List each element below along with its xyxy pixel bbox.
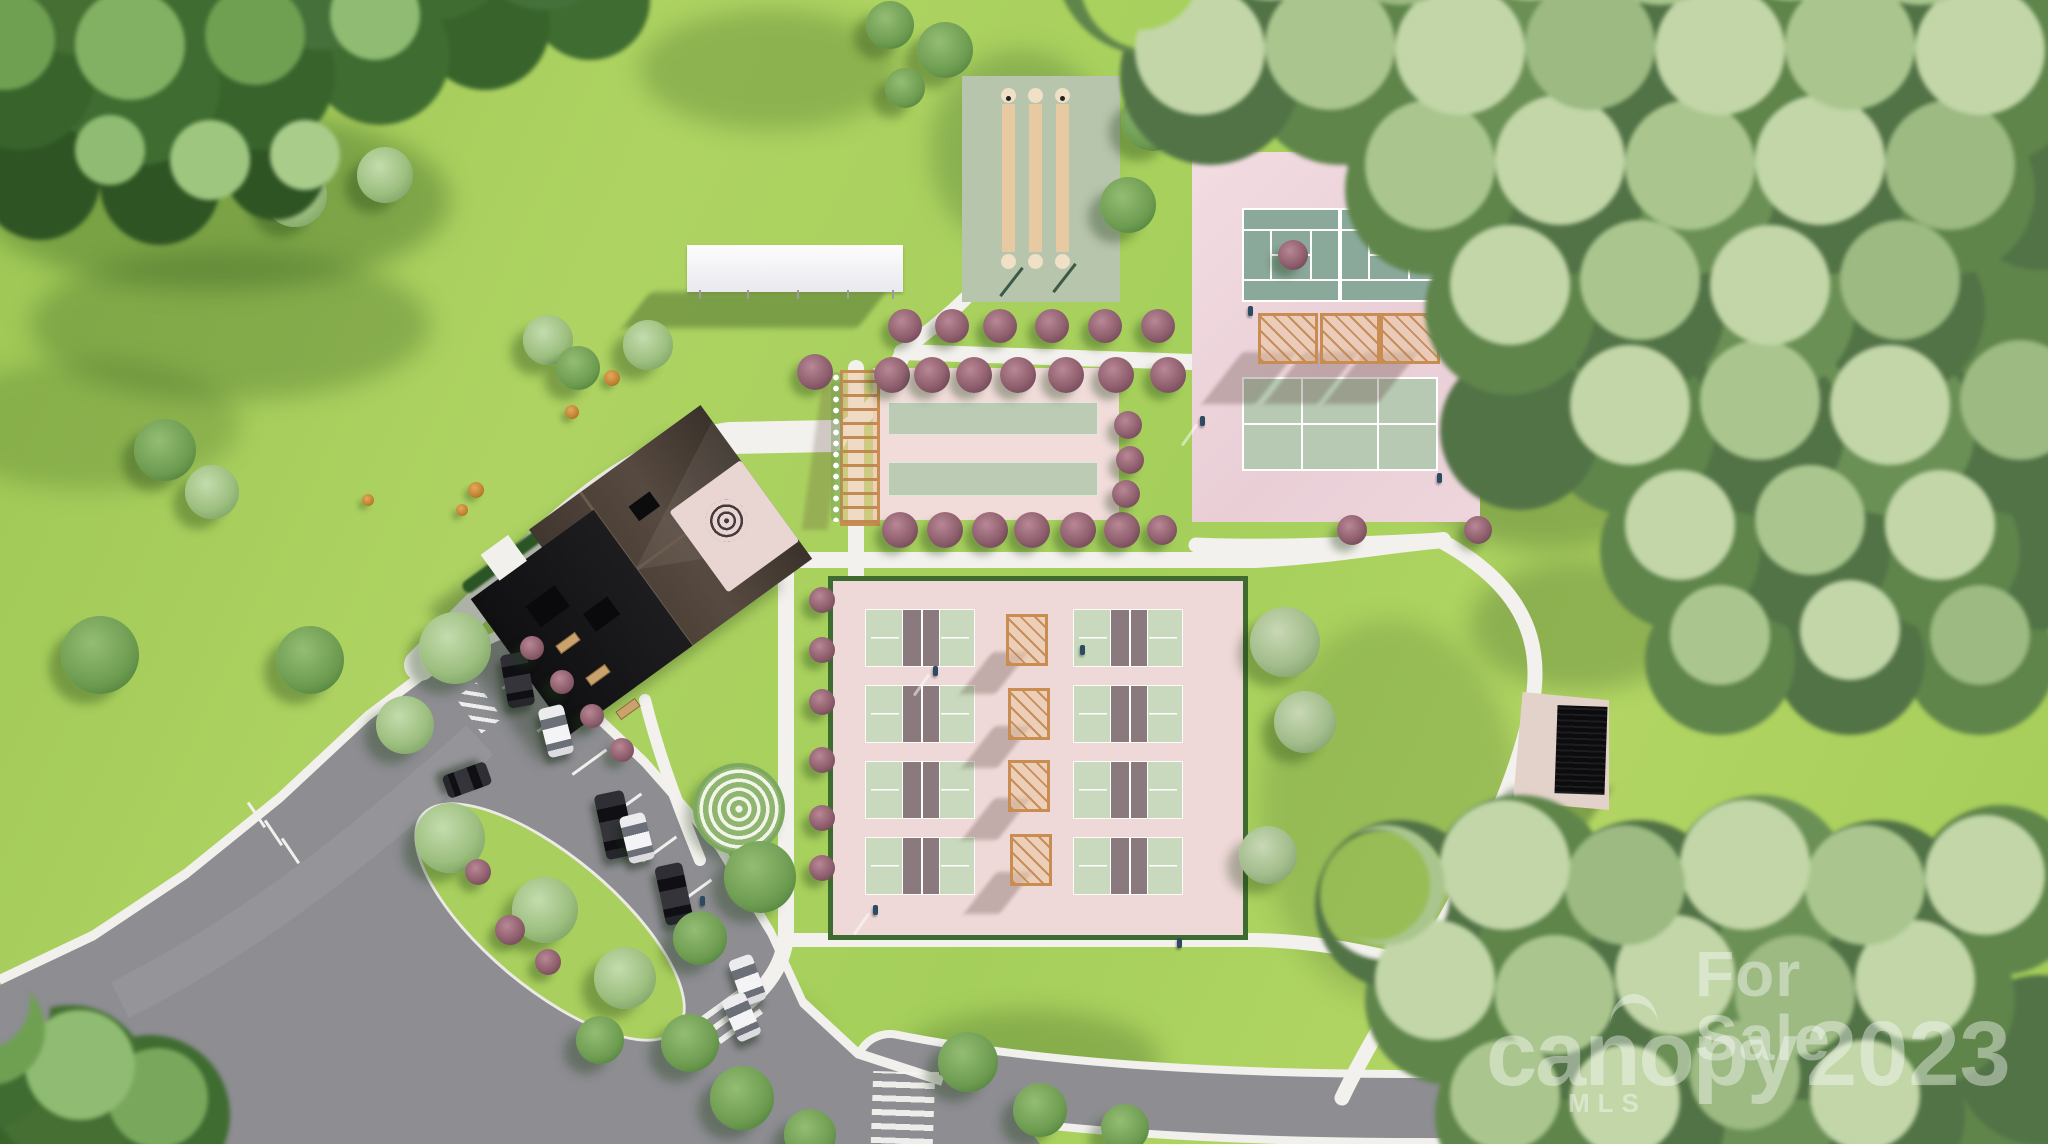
crosswalk (871, 1071, 935, 1144)
puck-dot (1006, 96, 1011, 101)
canopy-post (699, 290, 701, 299)
purple-tree (797, 354, 833, 390)
purple-shrub (610, 738, 634, 762)
watermark-mls: MLS (1568, 1090, 1647, 1116)
shuffleboard-lane (1002, 104, 1015, 252)
tree (185, 465, 239, 519)
person (1177, 938, 1182, 948)
pickleball-court (865, 837, 975, 895)
forest-right (1080, 0, 2048, 790)
orange-shrub (565, 405, 579, 419)
tree (724, 841, 796, 913)
pickleball-court (865, 609, 975, 667)
rose-mosaic (697, 491, 756, 550)
purple-tree (972, 512, 1008, 548)
walkway-pergola (1006, 614, 1048, 666)
lane-end-circle (1028, 88, 1043, 103)
purple-tree (983, 309, 1017, 343)
person (700, 896, 705, 906)
purple-tree (1035, 309, 1069, 343)
pickleball-kitchen (1110, 838, 1148, 894)
tree (866, 1, 914, 49)
orange-shrub (456, 504, 468, 516)
pickleball-kitchen (902, 610, 940, 666)
shuffleboard-lane (1056, 104, 1069, 252)
purple-tree (935, 309, 969, 343)
person (873, 905, 878, 915)
tree (556, 346, 600, 390)
tree (134, 419, 196, 481)
aerial-site-rendering: For Sale canopy 2023 MLS (0, 0, 2048, 1144)
purple-tree (1000, 357, 1036, 393)
canopy-post (797, 290, 799, 299)
pickleball-court (1073, 837, 1183, 895)
purple-shrub (550, 670, 574, 694)
puck-dot (1060, 96, 1065, 101)
purple-shrub (809, 689, 835, 715)
purple-tree (1048, 357, 1084, 393)
tree (710, 1066, 774, 1130)
spiral-garden (693, 763, 785, 855)
canopy-post (747, 290, 749, 299)
pickleball-kitchen (902, 686, 940, 742)
purple-shrub (809, 637, 835, 663)
lane-end-circle (1055, 254, 1070, 269)
purple-tree (874, 357, 910, 393)
bocce-lane (888, 462, 1098, 496)
purple-tree (882, 512, 918, 548)
flower-trellis-walkway (840, 370, 880, 526)
purple-tree (888, 309, 922, 343)
lane-end-circle (1001, 254, 1016, 269)
purple-shrub (465, 859, 491, 885)
canopy-post (847, 290, 849, 299)
purple-tree (914, 357, 950, 393)
purple-tree (927, 512, 963, 548)
shuffleboard-cue (999, 267, 1024, 297)
forest-bottom-left (0, 950, 270, 1144)
tree (61, 616, 139, 694)
forest-canopy-highlights (1320, 830, 1430, 940)
purple-shrub (809, 855, 835, 881)
tree (917, 22, 973, 78)
tree (1239, 826, 1297, 884)
purple-shrub (535, 949, 561, 975)
tree (576, 1016, 624, 1064)
tree (938, 1032, 998, 1092)
tree (1101, 1104, 1149, 1144)
purple-tree (956, 357, 992, 393)
pickleball-court (865, 761, 975, 819)
tree (673, 911, 727, 965)
purple-tree (1014, 512, 1050, 548)
purple-shrub (580, 704, 604, 728)
bocce-lane (888, 402, 1098, 435)
walkway-pergola (1008, 760, 1050, 812)
lane-end-circle (1028, 254, 1043, 269)
tree (661, 1014, 719, 1072)
tree (1013, 1083, 1067, 1137)
person (933, 666, 938, 676)
purple-shrub (520, 636, 544, 660)
canopy-post (892, 290, 894, 299)
purple-shrub (809, 587, 835, 613)
tree (594, 947, 656, 1009)
purple-shrub (495, 915, 525, 945)
orange-shrub (468, 482, 484, 498)
purple-shrub (809, 747, 835, 773)
tree (623, 320, 673, 370)
pickleball-kitchen (902, 762, 940, 818)
walkway-pergola (1008, 688, 1050, 740)
orange-shrub (362, 494, 374, 506)
tree (276, 626, 344, 694)
trellis-flowers (831, 372, 842, 522)
tree (376, 696, 434, 754)
pickleball-kitchen (902, 838, 940, 894)
orange-shrub (604, 370, 620, 386)
purple-shrub (809, 805, 835, 831)
tree (885, 68, 925, 108)
forest-top-left (0, 0, 790, 290)
tree (419, 612, 491, 684)
watermark-year: 2023 (1806, 1008, 2011, 1100)
forest-canopy (0, 0, 30, 10)
walkway-pergola (1010, 834, 1052, 886)
shuffleboard-lane (1029, 104, 1042, 252)
